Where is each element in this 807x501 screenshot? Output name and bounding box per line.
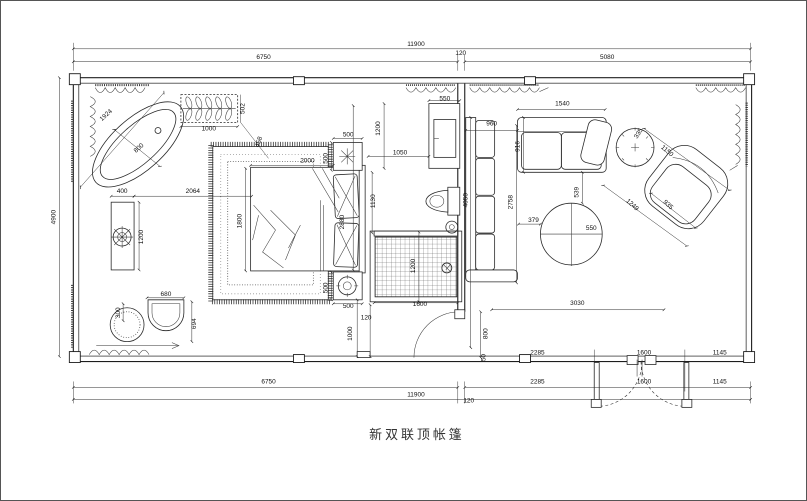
nightstand-top (333, 142, 362, 170)
dimension-label: 1050 (393, 149, 408, 156)
toilet (426, 187, 460, 233)
column-marker (520, 355, 531, 363)
curtain-icon (406, 88, 456, 92)
dimension-label: 539 (573, 186, 580, 197)
dimension-label: 916 (515, 141, 522, 152)
dimension-label: 680 (161, 291, 172, 298)
curtain-icon (736, 105, 740, 165)
column-marker (744, 352, 755, 363)
dimension-label: 694 (191, 318, 198, 329)
interior-door (357, 310, 465, 358)
dimension-label: 6750 (261, 378, 276, 385)
plant-shelf (181, 95, 238, 123)
dimension-label: 379 (528, 217, 539, 224)
dimension-label: 5080 (600, 54, 615, 61)
dimension-label: 1000 (202, 125, 217, 132)
dimension-label: 1145 (713, 350, 727, 357)
dimension-label: 120 (361, 315, 372, 322)
dimension-label: 4900 (50, 210, 57, 225)
curtain-symbols (72, 85, 746, 354)
floor-plan-canvas: 1190067501205080490019248001000502458400… (0, 0, 807, 501)
dimension-label: 300 (115, 307, 122, 318)
dimension-label: 120 (455, 50, 466, 57)
dimension-label: 3030 (570, 300, 585, 307)
column-marker (293, 77, 304, 85)
dimension-label: 1145 (713, 378, 727, 385)
curtain-icon (696, 88, 746, 92)
dimension-label: 500 (322, 282, 329, 293)
dimension-label: 120 (463, 397, 474, 404)
dimension-label: 500 (343, 303, 354, 310)
dimension-label: 502 (240, 103, 247, 114)
dimension-label: 1200 (375, 121, 382, 136)
curtain-icon (95, 88, 145, 93)
dimension-label: 400 (117, 188, 128, 195)
dimension-label: 1000 (347, 326, 354, 341)
wardrobe (429, 104, 460, 169)
lounge-chair (148, 300, 184, 331)
column-marker (525, 77, 536, 85)
dimension-label: 1200 (410, 258, 417, 273)
dimension-label: 1600 (413, 301, 428, 308)
armchair (637, 137, 736, 236)
dimension-label: 960 (486, 121, 497, 128)
drawing-title: 新双联顶帐篷 (369, 427, 465, 443)
dimension-label: 4050 (463, 193, 470, 208)
column-marker (69, 352, 80, 363)
coffee-table (540, 203, 602, 266)
plant-icon (339, 148, 355, 164)
curtain-icon (90, 97, 95, 157)
dimension-label: 2000 (300, 157, 315, 164)
dimension-label: 500 (343, 131, 354, 138)
drain-icon (155, 127, 161, 133)
dimension-label: 2285 (530, 350, 545, 357)
floor-plan-svg: 1190067501205080490019248001000502458400… (1, 1, 806, 500)
dimension-label: 1800 (237, 214, 244, 229)
dimension-label: 50 (481, 354, 488, 362)
dimension-label: 800 (133, 142, 146, 155)
dimension-label: 500 (322, 153, 329, 164)
dimension-label: 2064 (186, 188, 201, 195)
bed (251, 165, 366, 273)
dimension-label: 11900 (407, 391, 425, 398)
walls (69, 74, 754, 363)
dimension-label: 2758 (508, 195, 515, 210)
curtain-icon (470, 88, 540, 92)
nightstand-bottom (333, 272, 362, 300)
headboard (359, 165, 365, 273)
dimension-label: 1130 (370, 194, 377, 208)
top-sofa (518, 118, 614, 173)
door-leaf (594, 363, 599, 402)
dimension-label: 1200 (138, 229, 145, 244)
dimension-label: 1924 (98, 108, 114, 123)
column-marker (69, 74, 80, 85)
curtain-icon (89, 350, 149, 354)
dimension-label: 2880 (339, 215, 346, 230)
column-marker (744, 74, 755, 85)
dimension-label: 550 (439, 96, 450, 103)
column-marker (293, 355, 304, 363)
dimension-label: 1600 (637, 350, 652, 357)
dimension-label: 550 (586, 225, 597, 232)
dimension-label: 11900 (407, 41, 425, 48)
sofa-armrest (466, 270, 518, 282)
dimension-labels: 1190067501205080490019248001000502458400… (50, 41, 727, 405)
vanity-basin (111, 202, 134, 270)
dimension-label: 1540 (555, 101, 570, 108)
dimension-label: 2285 (530, 378, 545, 385)
dimension-label: 1600 (637, 378, 652, 385)
dimension-label: 6750 (256, 54, 271, 61)
dimension-label: 800 (483, 328, 490, 339)
threshold (374, 231, 458, 236)
door-leaf (684, 363, 689, 402)
